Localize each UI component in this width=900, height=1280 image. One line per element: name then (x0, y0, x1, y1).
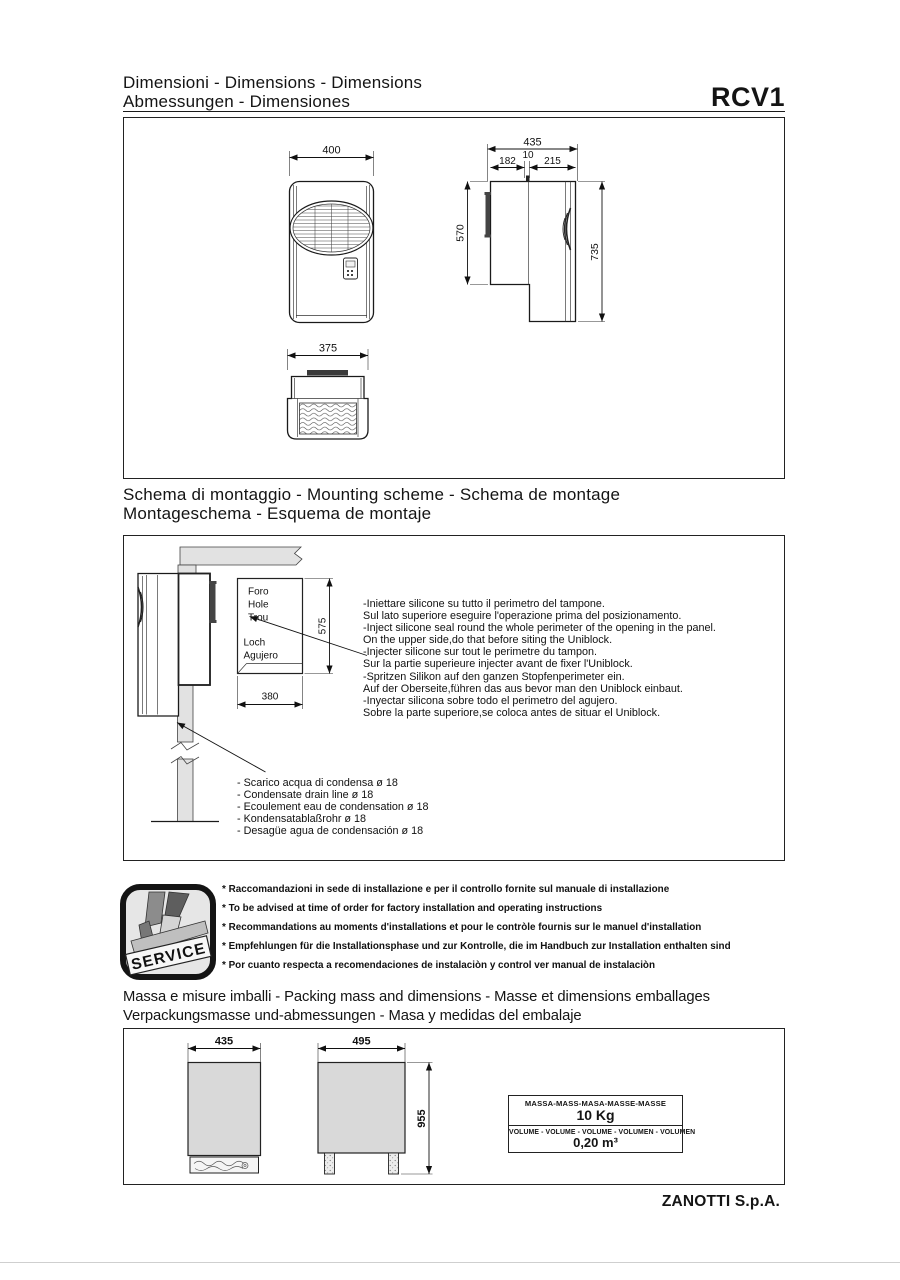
service-notes: * Raccomandazioni in sede di installazio… (222, 880, 731, 975)
hole-width-label: 380 (262, 692, 279, 703)
side-inner-height-label: 570 (455, 224, 467, 242)
fan-grille (290, 201, 373, 255)
instruction-line: Sur la partie superieure injecter avant … (363, 658, 716, 670)
service-note-line: * Raccomandazioni in sede di installazio… (222, 880, 731, 899)
pallet-foot (389, 1153, 399, 1174)
pack-side-width-label: 495 (352, 1036, 370, 1048)
dimensions-box: 400 (123, 117, 785, 479)
instruction-line: -Iniettare silicone su tutto il perimetr… (363, 598, 716, 610)
side-total-height-label: 735 (589, 243, 601, 261)
company-footer: ZANOTTI S.p.A. (123, 1193, 780, 1211)
instruction-line: Sobre la parte superiore,se coloca antes… (363, 707, 716, 719)
mass-volume-table: MASSA-MASS-MASA-MASSE-MASSE 10 Kg VOLUME… (508, 1095, 683, 1153)
drain-notes: - Scarico acqua di condensa ø 18 - Conde… (237, 778, 428, 838)
package-side-view: 495 955 (318, 1036, 433, 1175)
datasheet-page: Dimensioni - Dimensions - Dimensions Abm… (0, 0, 900, 1280)
pallet-foot (325, 1153, 335, 1174)
hole-label-es: Agujero (244, 651, 279, 662)
drain-note-line: - Desagüe agua de condensación ø 18 (237, 826, 428, 838)
hole-label-it: Foro (248, 587, 269, 598)
mounting-heading-line-2: Montageschema - Esquema de montaje (123, 505, 620, 524)
side-view-drawing: 435 10 182 215 (455, 137, 606, 322)
title-line-2: Abmessungen - Dimensiones (123, 93, 422, 112)
package-front-view: 435 (188, 1036, 261, 1174)
dimensions-drawing: 400 (124, 118, 781, 475)
side-total-width-label: 435 (523, 137, 541, 149)
page-title: Dimensioni - Dimensions - Dimensions Abm… (123, 74, 422, 111)
service-note-line: * Por cuanto respecta a recomendaciones … (222, 956, 731, 975)
service-icon: SERVICE (119, 883, 217, 981)
instruction-line: -Spritzen Silikon auf den ganzen Stopfen… (363, 671, 716, 683)
hole-label-en: Hole (248, 600, 269, 611)
mass-row: MASSA-MASS-MASA-MASSE-MASSE 10 Kg (509, 1096, 682, 1126)
panel-hole-drawing: Foro Hole Trou Loch Agujero 575 380 (238, 579, 334, 710)
side-left-width-label: 182 (499, 156, 516, 167)
instruction-line: -Inject silicone seal round the whole pe… (363, 622, 716, 634)
service-note-line: * Empfehlungen für die Installationsphas… (222, 937, 731, 956)
base-width-label: 375 (319, 343, 337, 355)
pack-front-width-label: 435 (215, 1036, 233, 1048)
mass-value: 10 Kg (509, 1108, 682, 1125)
packing-heading: Massa e misure imballi - Packing mass an… (123, 988, 710, 1026)
drain-note-line: - Kondensatablaßrohr ø 18 (237, 814, 428, 826)
hole-height-label: 575 (318, 617, 329, 634)
instruction-line: On the upper side,do that before siting … (363, 634, 716, 646)
panel-edge-mark (526, 176, 530, 182)
side-right-width-label: 215 (544, 156, 561, 167)
volume-row: VOLUME - VOLUME - VOLUME - VOLUMEN - VOL… (509, 1126, 682, 1152)
panel-gap-label: 10 (522, 150, 534, 161)
drain-note-line: - Ecoulement eau de condensation ø 18 (237, 802, 428, 814)
silicone-instructions: -Iniettare silicone su tutto il perimetr… (363, 598, 716, 719)
bottom-view-drawing: 375 (288, 343, 369, 440)
hole-label-de: Loch (244, 638, 266, 649)
packing-box: 435 495 955 (123, 1028, 785, 1185)
bottom-grille (300, 403, 357, 434)
instruction-line: -Inyectar silicona sobre todo el perimet… (363, 695, 716, 707)
control-panel (344, 258, 358, 279)
service-note-line: * Recommandations au moments d'installat… (222, 918, 731, 937)
instruction-line: -Injecter silicone sur tout le perimetre… (363, 646, 716, 658)
packing-heading-line-1: Massa e misure imballi - Packing mass an… (123, 988, 710, 1007)
uniblock-side-view (138, 574, 217, 717)
fixing-bracket (209, 581, 217, 623)
mounting-heading-line-1: Schema di montaggio - Mounting scheme - … (123, 486, 620, 505)
page-edge-line (0, 1262, 900, 1263)
mounting-heading: Schema di montaggio - Mounting scheme - … (123, 486, 620, 523)
front-view-drawing: 400 (290, 145, 374, 323)
break-line (171, 743, 199, 751)
front-width-label: 400 (322, 145, 340, 157)
product-code: RCV1 (600, 82, 785, 113)
packing-heading-line-2: Verpackungsmasse und-abmessungen - Masa … (123, 1007, 710, 1026)
title-line-1: Dimensioni - Dimensions - Dimensions (123, 74, 422, 93)
pack-height-label: 955 (416, 1109, 428, 1127)
service-note-line: * To be advised at time of order for fac… (222, 899, 731, 918)
volume-value: 0,20 m³ (509, 1136, 682, 1152)
instruction-line: Auf der Oberseite,führen das aus bevor m… (363, 683, 716, 695)
instruction-line: Sul lato superiore eseguire l'operazione… (363, 610, 716, 622)
title-underline (123, 111, 785, 112)
wall-flange (307, 370, 348, 376)
